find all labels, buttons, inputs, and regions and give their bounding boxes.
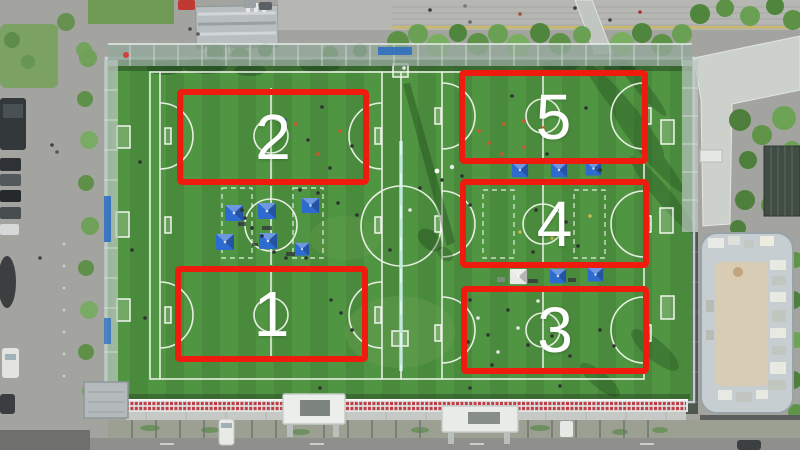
- pitch-number-4: 4: [537, 192, 573, 256]
- blue-tent: [258, 203, 276, 219]
- grandstand-seating: [122, 399, 688, 412]
- pitch-number-3: 3: [537, 298, 573, 362]
- pitch-number-1: 1: [254, 282, 290, 346]
- blue-tent: [295, 243, 309, 256]
- banner-blue-top: [378, 47, 412, 55]
- pitch-number-5: 5: [536, 85, 572, 149]
- blue-tent: [216, 234, 234, 250]
- street: [0, 438, 800, 450]
- blue-tent: [550, 269, 566, 283]
- courtyard: [716, 262, 768, 386]
- flag-red: [123, 52, 129, 58]
- walkway-canopy: [126, 412, 686, 421]
- screenshot-root: 1 2 3 4 5: [0, 0, 800, 450]
- pitch-highlight-3[interactable]: 3: [461, 286, 649, 374]
- white-car: [2, 348, 19, 378]
- blue-tent: [512, 163, 528, 177]
- pitch-highlight-2[interactable]: 2: [177, 89, 369, 185]
- white-tent: [510, 269, 527, 284]
- white-van: [219, 419, 234, 445]
- blue-tent: [302, 198, 319, 213]
- dark-car: [737, 440, 761, 450]
- solar-panels: [764, 146, 800, 216]
- footbridge: [700, 150, 722, 162]
- pitch-highlight-5[interactable]: 5: [459, 70, 648, 164]
- stair-block: [84, 382, 128, 418]
- white-car: [560, 421, 573, 437]
- dark-car: [259, 2, 272, 10]
- pitch-highlight-4[interactable]: 4: [460, 179, 649, 268]
- pitch-highlight-1[interactable]: 1: [175, 266, 368, 362]
- aerial-photo: [0, 0, 800, 450]
- blue-tent: [551, 163, 567, 177]
- gray-car: [243, 0, 256, 8]
- red-car: [178, 0, 195, 10]
- blue-tent: [588, 268, 603, 282]
- pitch-number-2: 2: [255, 105, 291, 169]
- right-fence: [682, 60, 698, 232]
- banner-blue-left: [104, 196, 111, 242]
- blue-tent: [225, 205, 243, 221]
